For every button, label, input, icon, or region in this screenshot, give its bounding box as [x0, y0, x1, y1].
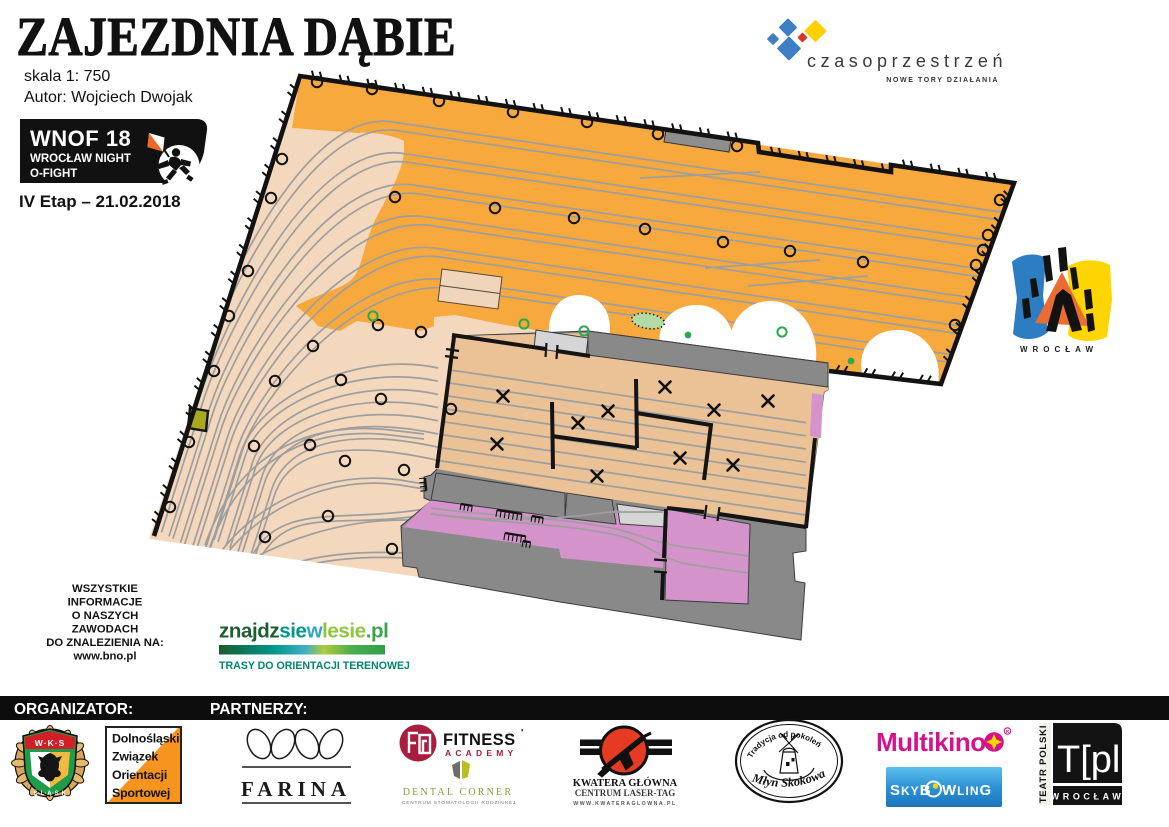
svg-text:WROCŁAW: WROCŁAW [1051, 792, 1125, 802]
svg-text:Ś·L·Ą·S·K: Ś·L·Ą·S·K [34, 790, 67, 797]
svg-text:T[pl: T[pl [1057, 739, 1120, 781]
svg-text:Multikino: Multikino [876, 727, 986, 757]
svg-text:WROCŁAW NIGHT: WROCŁAW NIGHT [30, 153, 131, 165]
svg-text:': ' [521, 728, 523, 739]
svg-text:CENTRUM STOMATOLOGII RODZINNEJ: CENTRUM STOMATOLOGII RODZINNEJ [402, 800, 516, 806]
svg-text:Sportowej: Sportowej [112, 786, 170, 800]
svg-text:ZAJEZDNIA DĄBIE: ZAJEZDNIA DĄBIE [16, 7, 456, 68]
svg-text:FITNESS: FITNESS [443, 731, 515, 749]
svg-text:DENTAL CORNER: DENTAL CORNER [403, 787, 513, 798]
svg-text:FARINA: FARINA [241, 777, 351, 801]
svg-text:O-FIGHT: O-FIGHT [30, 168, 77, 180]
svg-text:znajdzsiewlesie.pl: znajdzsiewlesie.pl [219, 620, 388, 643]
svg-text:WLING: WLING [942, 782, 992, 799]
svg-text:DO ZNALEZIENIA NA:: DO ZNALEZIENIA NA: [46, 637, 164, 649]
svg-text:Dolnośląski: Dolnośląski [112, 732, 179, 746]
svg-text:WNOF 18: WNOF 18 [30, 126, 131, 151]
svg-text:Związek: Związek [112, 750, 158, 764]
svg-text:WSZYSTKIE: WSZYSTKIE [72, 583, 138, 595]
svg-text:O NASZYCH: O NASZYCH [72, 610, 139, 622]
svg-text:Autor: Wojciech Dwojak: Autor: Wojciech Dwojak [24, 89, 194, 106]
svg-text:NOWE TORY DZIAŁANIA: NOWE TORY DZIAŁANIA [886, 77, 999, 84]
svg-text:www.bno.pl: www.bno.pl [73, 651, 137, 663]
svg-text:ACADEMY: ACADEMY [445, 748, 517, 758]
svg-text:W·K·S: W·K·S [35, 738, 66, 748]
svg-text:CENTRUM LASER-TAG: CENTRUM LASER-TAG [575, 788, 676, 798]
svg-text:IV Etap – 21.02.2018: IV Etap – 21.02.2018 [19, 192, 181, 211]
svg-text:INFORMACJE: INFORMACJE [68, 597, 143, 609]
svg-text:PARTNERZY:: PARTNERZY: [210, 701, 308, 718]
svg-text:TRASY DO ORIENTACJI TERENOWEJ: TRASY DO ORIENTACJI TERENOWEJ [219, 660, 410, 672]
svg-text:skala 1: 750: skala 1: 750 [24, 68, 110, 85]
svg-text:Orientacji: Orientacji [112, 768, 167, 782]
svg-text:ZAWODACH: ZAWODACH [72, 624, 139, 636]
svg-text:WWW.KWATERAGLOWNA.PL: WWW.KWATERAGLOWNA.PL [573, 801, 676, 807]
svg-text:WROCŁAW: WROCŁAW [1020, 345, 1098, 354]
svg-text:ORGANIZATOR:: ORGANIZATOR: [14, 701, 133, 718]
svg-text:czasoprzestrzeń: czasoprzestrzeń [807, 51, 1007, 71]
svg-text:TEATR POLSKI: TEATR POLSKI [1038, 725, 1049, 804]
